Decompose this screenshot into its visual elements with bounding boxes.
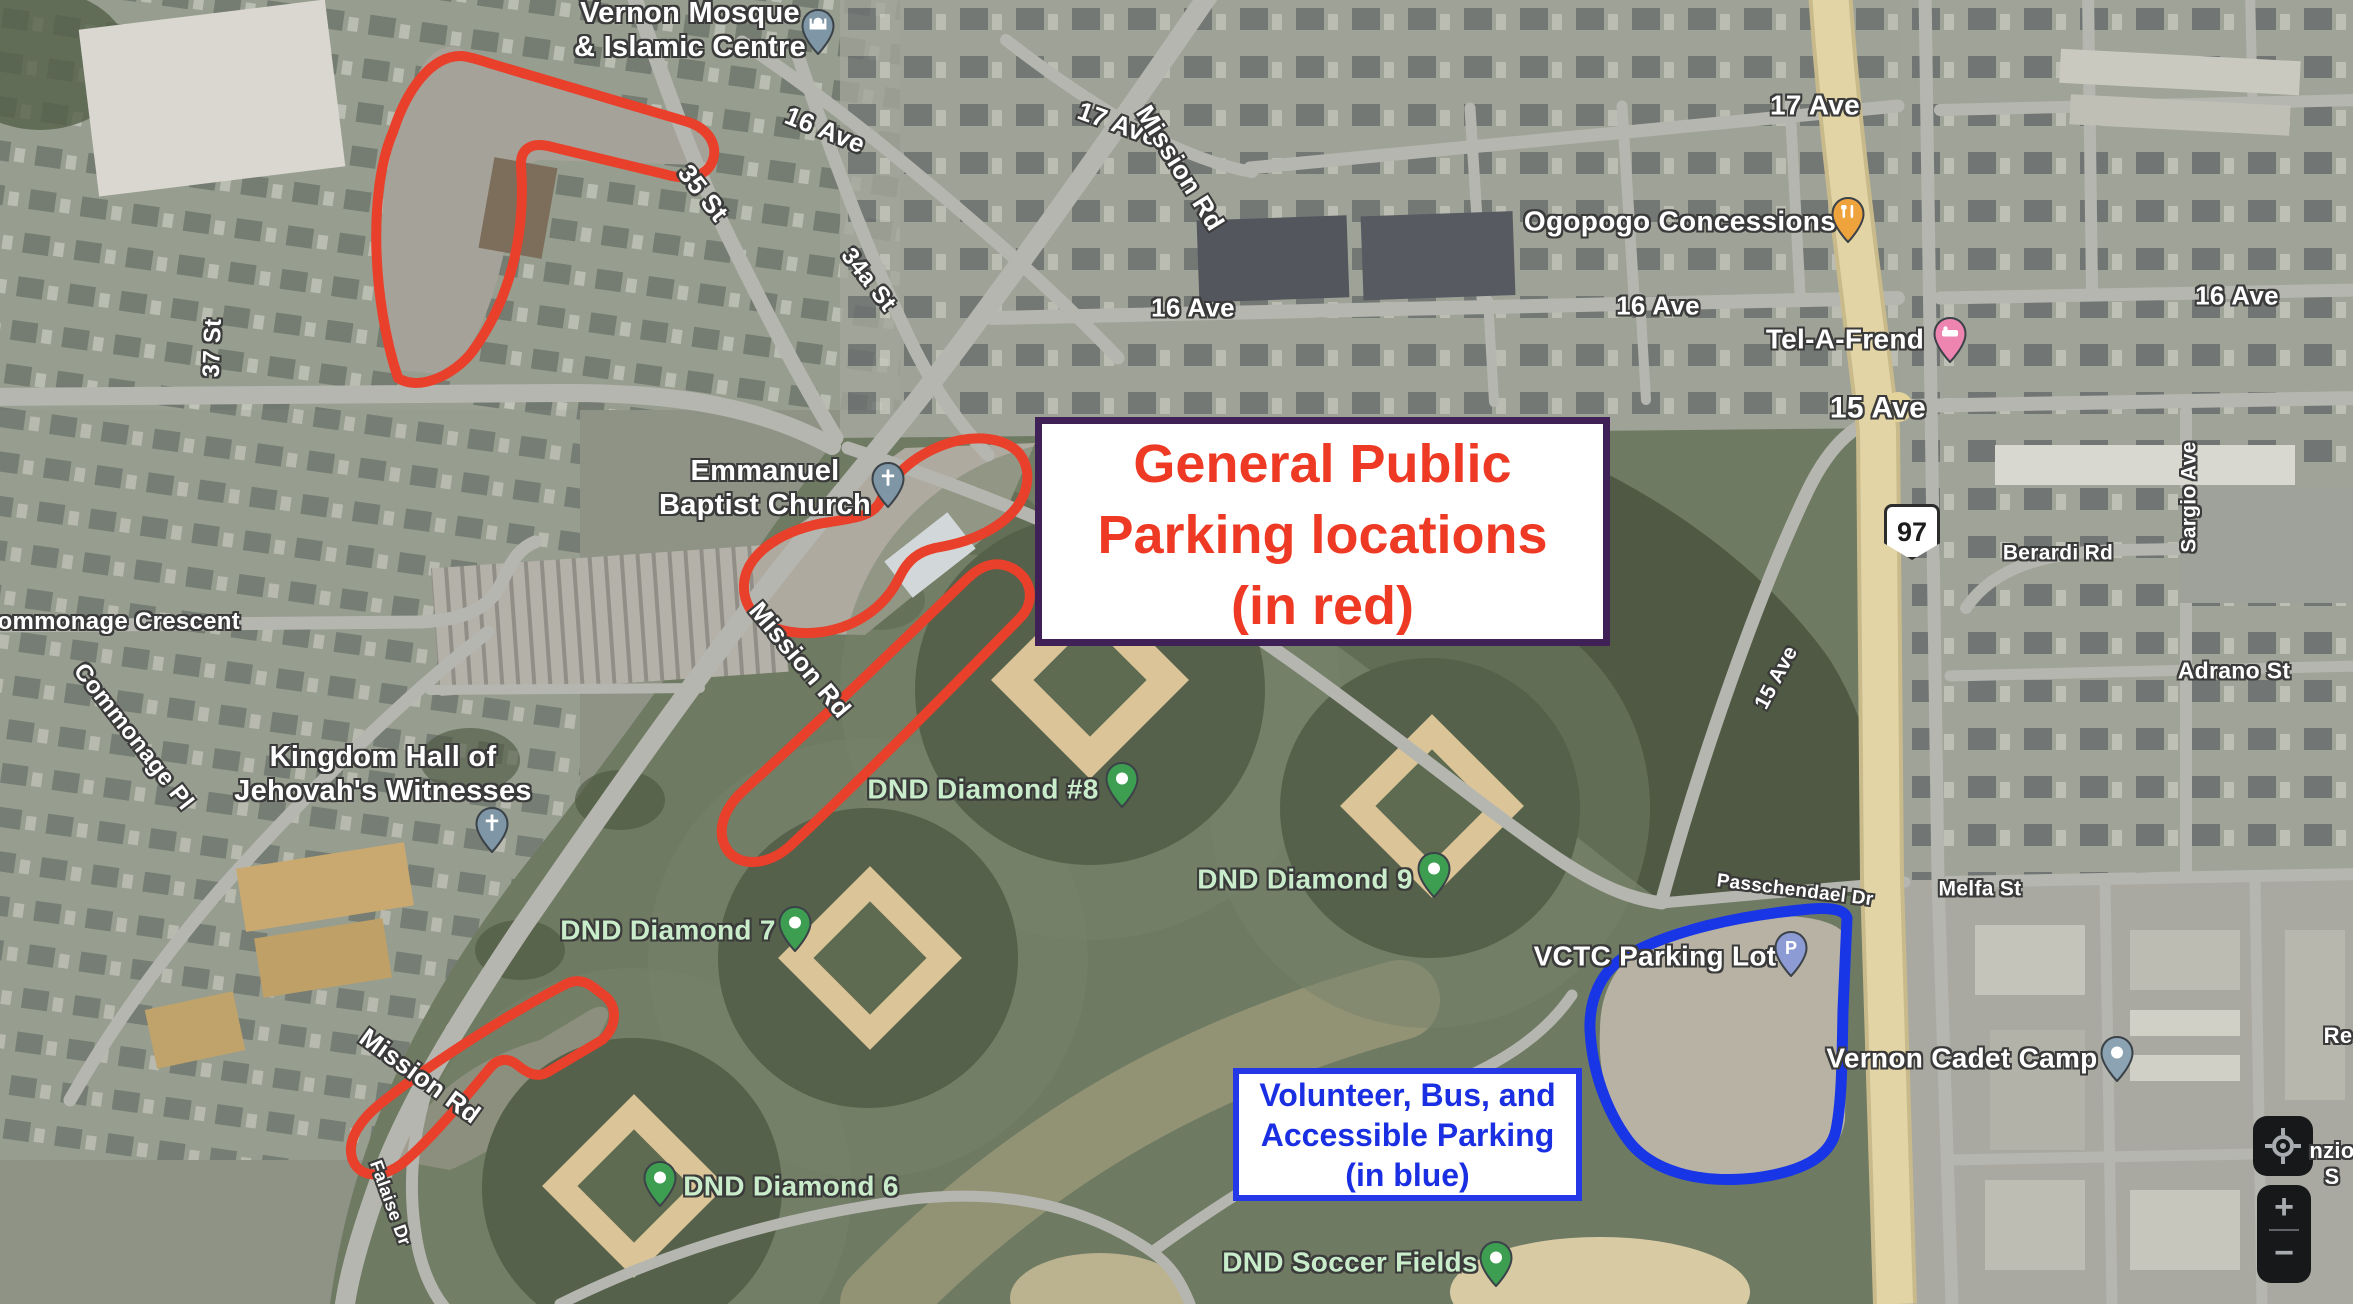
vernon-mosque-pin[interactable] <box>801 9 835 55</box>
place-label-kingdom-hall[interactable]: Kingdom Hall of Jehovah's Witnesses <box>234 740 532 808</box>
emmanuel-church-pin[interactable] <box>871 462 905 508</box>
street-label-berardi-rd: Berardi Rd <box>2003 542 2113 567</box>
note-line: (in red) <box>1042 571 1603 642</box>
place-label-dnd-soccer-fields[interactable]: DND Soccer Fields <box>1222 1245 1478 1278</box>
satellite-basemap <box>0 0 2353 1304</box>
dnd-diamond-9-pin[interactable] <box>1417 852 1451 898</box>
my-location-button[interactable] <box>2253 1116 2313 1176</box>
my-location-icon <box>2264 1127 2302 1165</box>
ogopogo-concessions-pin[interactable] <box>1831 197 1865 243</box>
tel-a-frend-pin[interactable] <box>1933 317 1967 363</box>
place-label-vctc-parking-lot[interactable]: VCTC Parking Lot <box>1534 939 1777 972</box>
map-canvas[interactable]: General Public Parking locations (in red… <box>0 0 2353 1304</box>
place-label-tel-a-frend[interactable]: Tel-A-Frend <box>1766 322 1924 355</box>
volunteer-parking-note: Volunteer, Bus, and Accessible Parking (… <box>1233 1068 1582 1201</box>
street-label-fragment-re: Re <box>2324 1023 2353 1049</box>
public-parking-note: General Public Parking locations (in red… <box>1035 417 1610 646</box>
place-label-dnd-diamond-8[interactable]: DND Diamond #8 <box>867 772 1098 805</box>
vctc-parking-pin[interactable]: P <box>1774 931 1808 977</box>
note-line: Accessible Parking <box>1239 1115 1576 1155</box>
poi-dot-icon <box>1490 1252 1502 1264</box>
note-line: General Public <box>1042 429 1603 500</box>
place-label-dnd-diamond-6[interactable]: DND Diamond 6 <box>683 1169 898 1202</box>
poi-dot-icon <box>789 917 801 929</box>
poi-dot-icon <box>654 1172 666 1184</box>
street-label-16-ave-far-right: 16 Ave <box>2195 281 2279 312</box>
dnd-diamond-8-pin[interactable] <box>1105 762 1139 808</box>
zoom-out-button[interactable]: − <box>2257 1231 2311 1275</box>
parking-p-icon: P <box>1785 938 1797 958</box>
place-label-ogopogo-concessions[interactable]: Ogopogo Concessions <box>1524 204 1836 237</box>
place-label-vernon-mosque[interactable]: Vernon Mosque & Islamic Centre <box>574 0 806 64</box>
zoom-control: + − <box>2257 1185 2311 1283</box>
kingdom-hall-pin[interactable] <box>475 807 509 853</box>
street-label-melfa-st: Melfa St <box>1939 878 2022 903</box>
dnd-diamond-6-pin[interactable] <box>643 1161 677 1207</box>
street-label-16-ave-mid-left: 16 Ave <box>1151 293 1235 324</box>
dnd-soccer-fields-pin[interactable] <box>1479 1241 1513 1287</box>
street-label-adrano-st: Adrano St <box>2178 657 2291 684</box>
note-line: Volunteer, Bus, and <box>1239 1075 1576 1115</box>
zoom-in-button[interactable]: + <box>2257 1185 2311 1229</box>
street-label-37-st: 37 St <box>198 318 228 378</box>
vernon-cadet-camp-pin[interactable] <box>2100 1036 2134 1082</box>
poi-dot-icon <box>1116 773 1128 785</box>
dnd-diamond-7-pin[interactable] <box>778 906 812 952</box>
place-label-vernon-cadet-camp[interactable]: Vernon Cadet Camp <box>1826 1041 2097 1074</box>
note-line: Parking locations <box>1042 500 1603 571</box>
poi-dot-icon <box>2111 1047 2123 1059</box>
poi-dot-icon <box>1428 863 1440 875</box>
place-label-emmanuel-baptist-church[interactable]: Emmanuel Baptist Church <box>659 454 871 522</box>
place-label-dnd-diamond-9[interactable]: DND Diamond 9 <box>1197 862 1412 895</box>
street-label-17-ave-ne: 17 Ave <box>1770 88 1860 121</box>
note-line: (in blue) <box>1239 1155 1576 1195</box>
place-label-dnd-diamond-7[interactable]: DND Diamond 7 <box>560 913 775 946</box>
street-label-15-ave: 15 Ave <box>1830 390 1926 425</box>
street-label-commonage-crescent: Commonage Crescent <box>0 608 240 636</box>
street-label-16-ave-mid-right: 16 Ave <box>1616 291 1700 322</box>
street-label-sargio-ave: Sargio Ave <box>2178 441 2203 552</box>
highway-97-label: 97 <box>1897 517 1927 548</box>
street-label-fragment-anzio: nzio S <box>2309 1138 2353 1190</box>
